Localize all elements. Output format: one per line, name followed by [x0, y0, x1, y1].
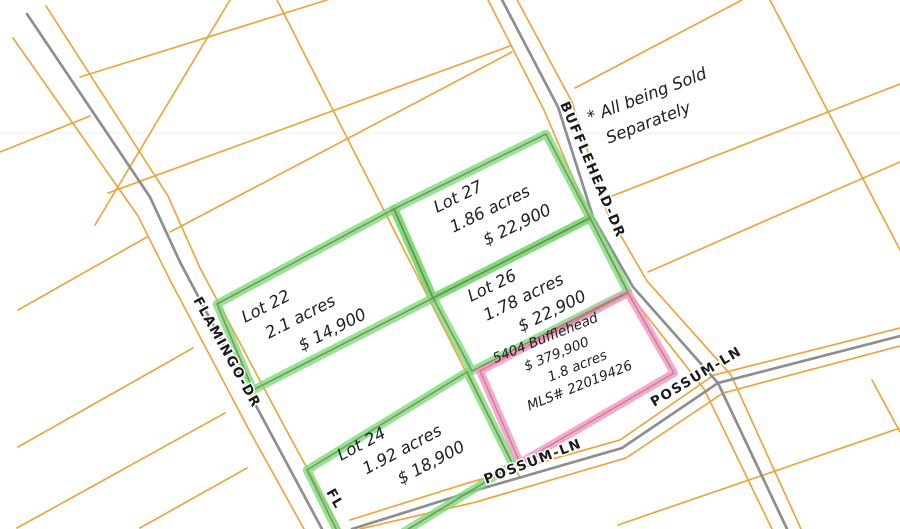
parcel-line	[486, 0, 772, 529]
parcel-line	[770, 0, 900, 250]
parcel-line	[18, 237, 147, 310]
parcel-line	[46, 6, 340, 529]
parcel-line	[108, 46, 510, 193]
parcel-line	[575, 0, 742, 88]
parcel-line	[872, 380, 900, 432]
featured-lot-annotation: 5404 Bufflehead $ 379,900 1.8 acres MLS#…	[491, 305, 635, 420]
sold-separately-note: * All being Sold Separately	[585, 62, 724, 151]
parcel-line	[18, 348, 193, 447]
plat-map: BUFFLEHEAD-DR FLAMINGO-DR POSSUM-LN POSS…	[0, 0, 900, 529]
lot-22-annotation: Lot 22 2.1 acres $ 14,900	[238, 259, 369, 372]
parcel-line	[618, 428, 900, 525]
street-label-possum-ln-lower: POSSUM-LN	[482, 436, 584, 488]
parcel-line	[140, 468, 247, 528]
parcel-line	[80, 0, 327, 77]
parcel-line	[0, 116, 90, 152]
plat-map-drawing: BUFFLEHEAD-DR FLAMINGO-DR POSSUM-LN POSS…	[0, 0, 900, 529]
